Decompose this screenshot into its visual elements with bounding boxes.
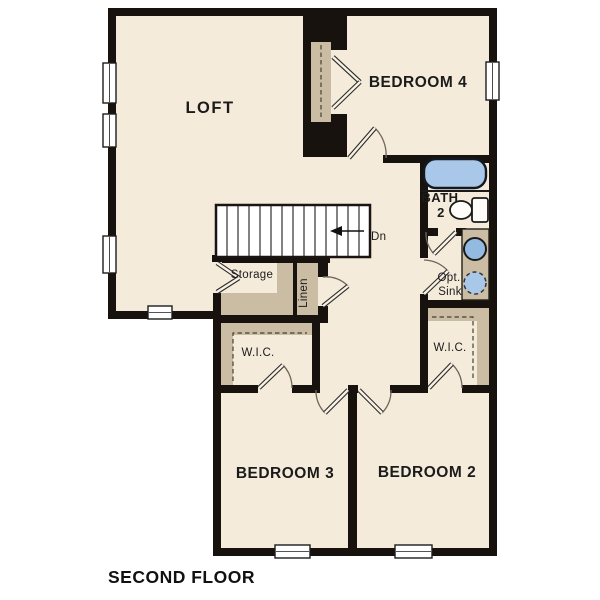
wall-bath-divider [420, 228, 438, 236]
wall-bedrooms-top [213, 385, 258, 393]
wic-left-label: W.I.C. [241, 347, 274, 359]
stairs-down-label: Dn [371, 231, 386, 243]
bedroom4-label: BEDROOM 4 [369, 74, 467, 91]
opt-sink-label-line1: Opt. [438, 272, 461, 284]
bedroom2-label: BEDROOM 2 [378, 464, 476, 481]
wic-right-label: W.I.C. [433, 342, 466, 354]
wall-wic-left-right [312, 323, 320, 393]
storage-label: Storage [231, 269, 273, 281]
wall-bedrooms-top [462, 385, 489, 393]
wall-top [108, 8, 497, 16]
optional-sink-icon [464, 272, 486, 294]
wall-bedrooms-top [390, 385, 428, 393]
floor-plan-drawing: Dn [0, 0, 600, 600]
bathtub-icon [424, 159, 486, 188]
bath2-label-line1: BATH [421, 190, 458, 205]
wall-linen-right [318, 258, 328, 277]
opt-sink-label-line2: Sink [438, 286, 462, 298]
wall-bedrooms-top [292, 385, 316, 393]
storage-shelf [221, 293, 293, 315]
staircase: Dn [216, 205, 386, 257]
wall-storage-left [213, 293, 221, 311]
bath2-label-line2: 2 [437, 205, 445, 220]
wall-bedroom-divider [348, 390, 357, 548]
wic-left-shelf-side [221, 335, 233, 385]
bedroom4-closet [311, 42, 347, 122]
wic-right-shelf-side [477, 321, 489, 385]
linen-label: Linen [298, 278, 310, 308]
wall-hall-wic [420, 294, 428, 393]
sink-icon [464, 238, 486, 260]
wall-wic-right-top [420, 300, 490, 308]
toilet-tank-icon [472, 198, 488, 222]
wic-right-shelf-top [428, 308, 489, 321]
wall-left-lower [213, 311, 221, 556]
wall-storage-linen [293, 263, 297, 315]
wall-storage-wic [213, 315, 328, 323]
floor-plan: Dn [0, 0, 600, 600]
floor-title: SECOND FLOOR [108, 567, 255, 587]
loft-label: LOFT [185, 99, 234, 117]
bedroom3-label: BEDROOM 3 [236, 465, 334, 482]
wall-bottom [213, 548, 497, 556]
